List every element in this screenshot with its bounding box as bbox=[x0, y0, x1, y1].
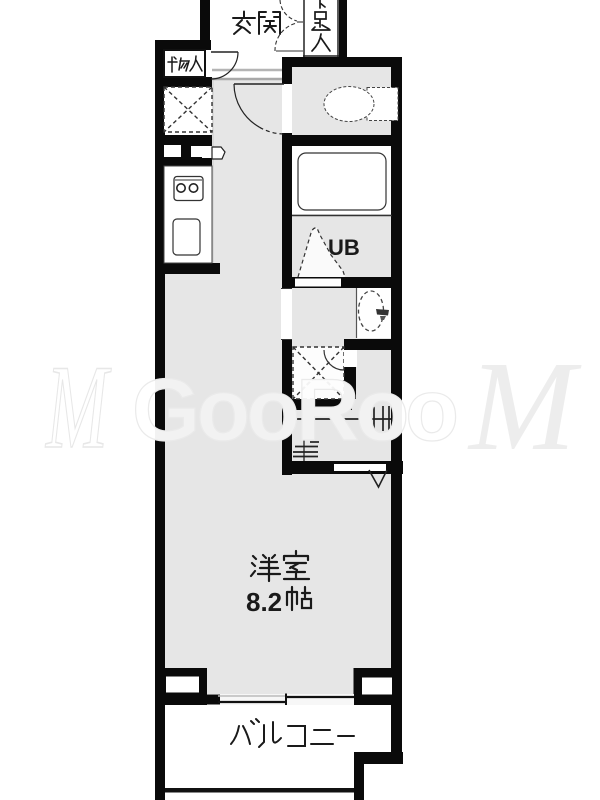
svg-text:GooRoo: GooRoo bbox=[132, 360, 456, 459]
svg-text:8.2: 8.2 bbox=[246, 587, 282, 617]
svg-text:UB: UB bbox=[328, 235, 360, 260]
svg-text:M: M bbox=[467, 335, 582, 477]
svg-text:M: M bbox=[45, 340, 112, 473]
